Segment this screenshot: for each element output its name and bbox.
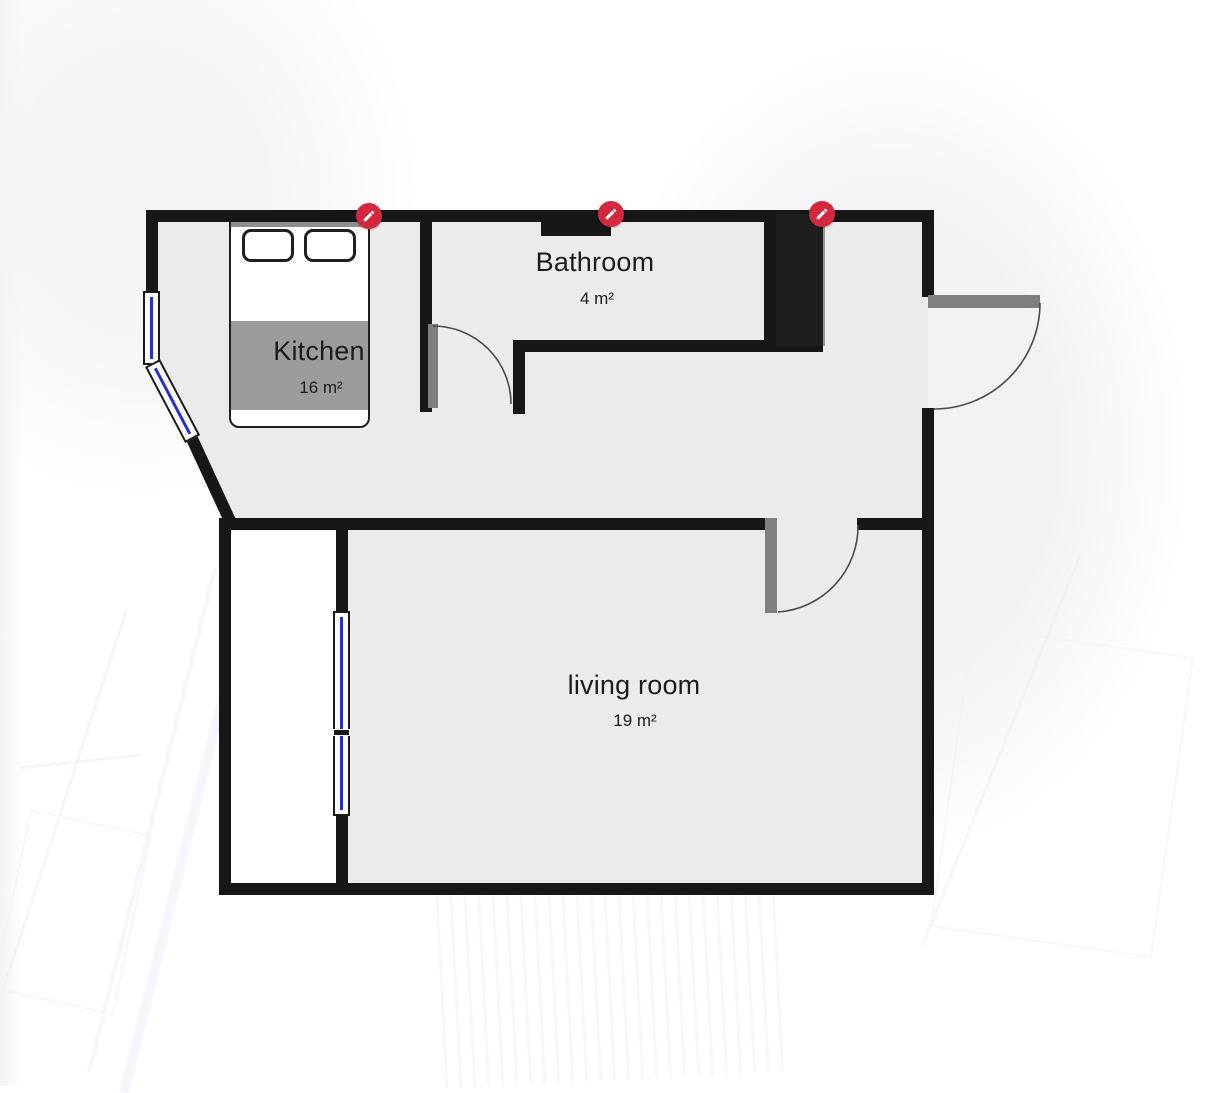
floorplan-canvas: Kitchen 16 m² Bathroom 4 m² living room … xyxy=(0,0,1210,1086)
wall-segment[interactable] xyxy=(219,518,765,530)
room-area-kitchen: 16 m² xyxy=(211,378,431,398)
pencil-icon xyxy=(815,207,829,221)
edit-pin-bed[interactable] xyxy=(356,203,382,229)
wall-segment[interactable] xyxy=(764,210,776,352)
room-area-living-room: 19 m² xyxy=(525,711,745,731)
room-label-living-room: living room xyxy=(524,670,744,701)
edit-pin-bathroom[interactable] xyxy=(598,201,624,227)
wall-segment[interactable] xyxy=(219,518,231,895)
pencil-icon xyxy=(604,207,618,221)
door-arc-entry xyxy=(934,303,1040,409)
wall-segment[interactable] xyxy=(857,518,934,530)
bed-pillow xyxy=(304,229,356,262)
room-label-bathroom: Bathroom xyxy=(485,247,705,278)
bed-pillow xyxy=(242,229,294,262)
room-fill-balcony xyxy=(231,524,336,887)
wall-segment[interactable] xyxy=(922,210,934,297)
wall-segment[interactable] xyxy=(513,340,525,414)
wall-segment[interactable] xyxy=(219,883,934,895)
wall-segment[interactable] xyxy=(146,210,158,295)
door-leaf-livingroom[interactable] xyxy=(765,518,777,613)
room-label-kitchen: Kitchen xyxy=(209,336,429,367)
window[interactable] xyxy=(333,611,350,816)
wall-segment[interactable] xyxy=(336,814,348,895)
window-glass xyxy=(340,617,343,810)
pencil-icon xyxy=(362,209,376,223)
room-area-bathroom: 4 m² xyxy=(487,289,707,309)
edit-pin-shaft[interactable] xyxy=(809,201,835,227)
wall-segment[interactable] xyxy=(922,408,934,895)
floorplan: Kitchen 16 m² Bathroom 4 m² living room … xyxy=(0,0,1210,1086)
window-glass xyxy=(150,297,153,359)
shaft-block[interactable] xyxy=(776,214,825,346)
window[interactable] xyxy=(143,291,160,365)
door-leaf-entry[interactable] xyxy=(928,295,1040,308)
window-mullion xyxy=(333,729,350,736)
wall-segment[interactable] xyxy=(336,518,348,613)
